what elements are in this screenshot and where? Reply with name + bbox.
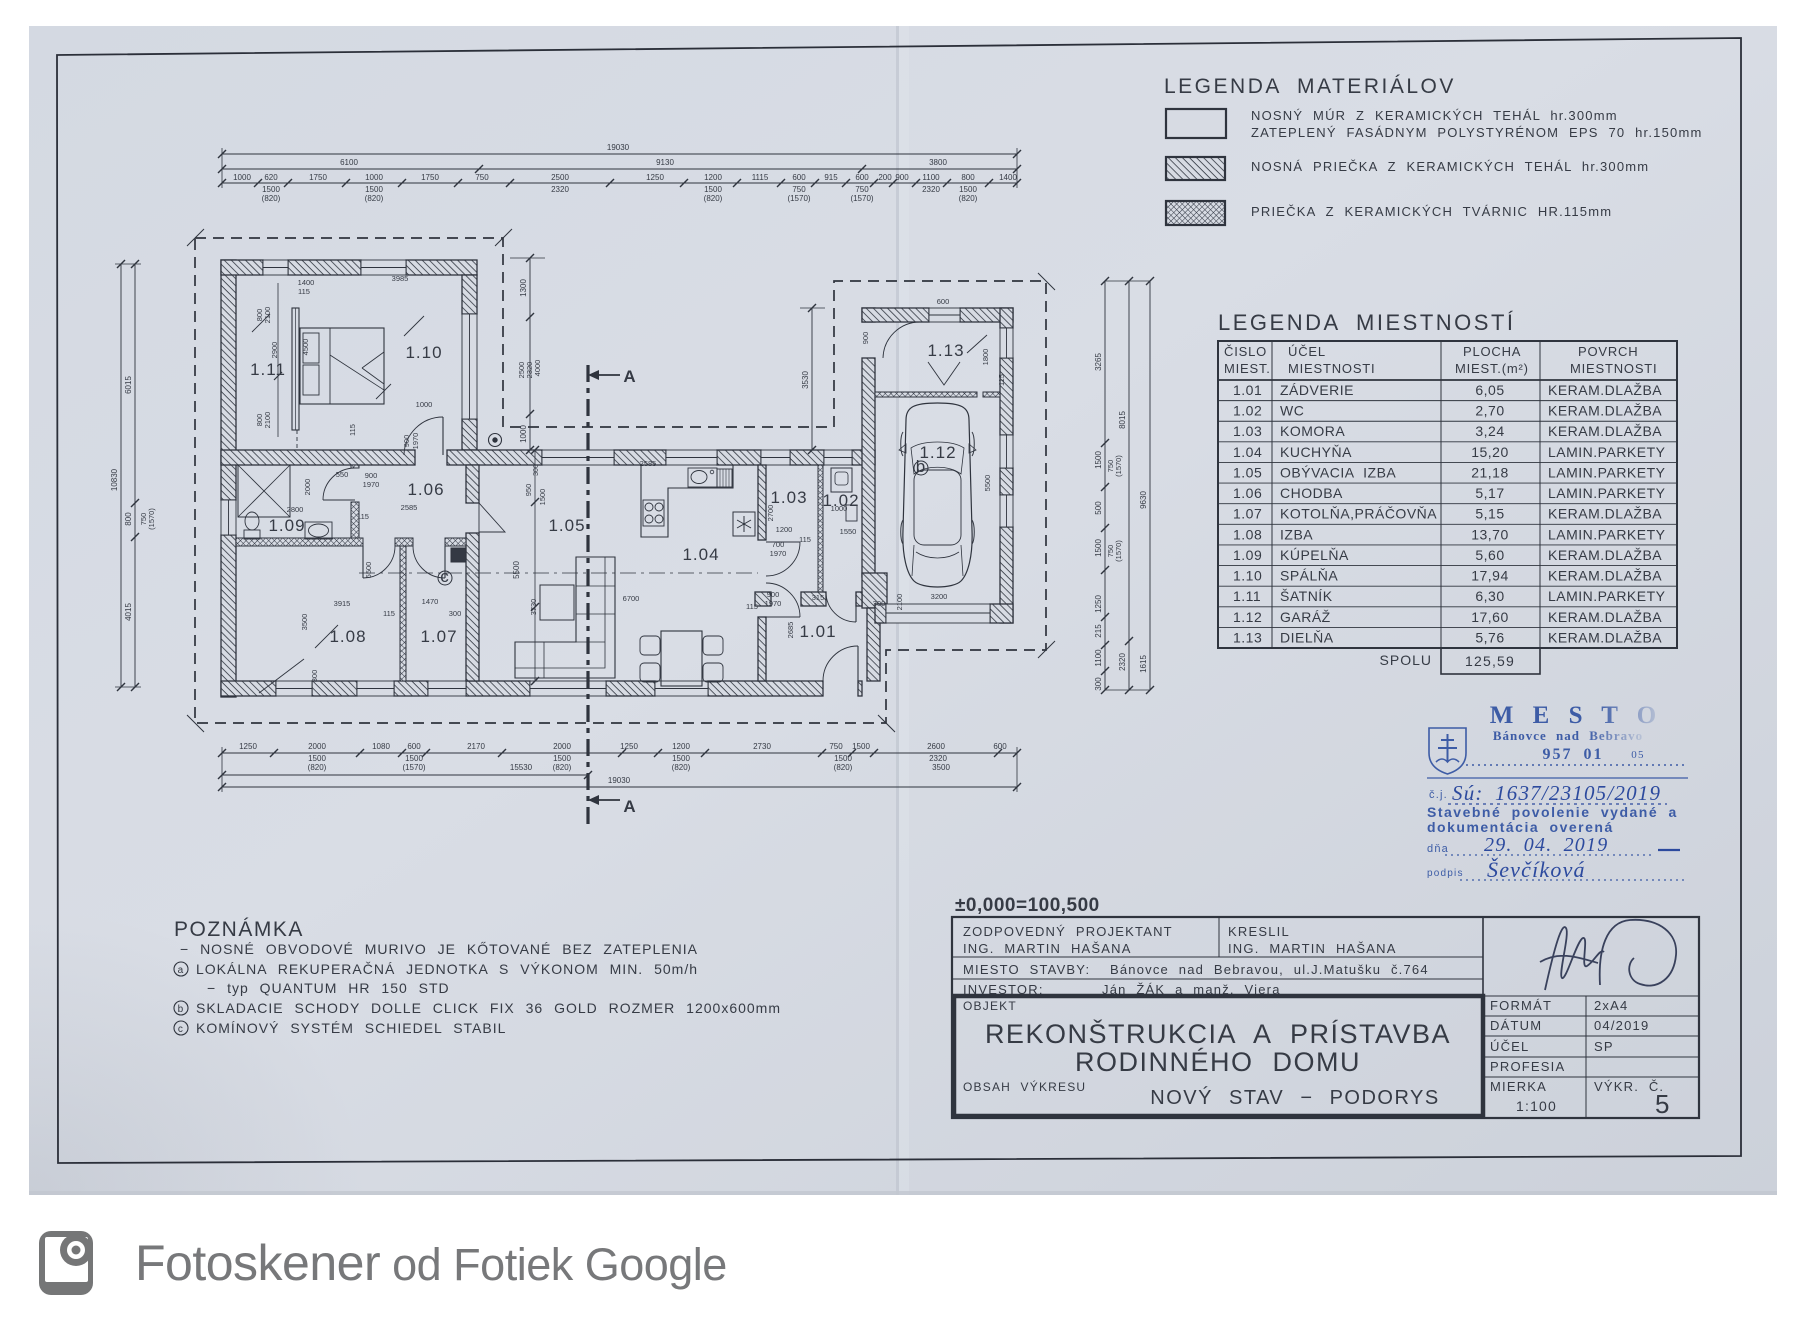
svg-text:2700: 2700 xyxy=(766,505,775,522)
svg-text:Bánovce nad Bebravou, ul.J.: Bánovce nad Bebravou, ul.J.Matušku č.764 xyxy=(1110,962,1429,977)
svg-text:dňa: dňa xyxy=(1427,843,1449,855)
svg-text:KERAM.DLAŽBA: KERAM.DLAŽBA xyxy=(1548,547,1662,563)
svg-text:M E S T O: M E S T O xyxy=(1490,702,1660,729)
svg-text:KRESLIL: KRESLIL xyxy=(1228,924,1290,939)
svg-text:915: 915 xyxy=(824,173,838,182)
svg-text:1.02: 1.02 xyxy=(1233,403,1262,419)
svg-text:750: 750 xyxy=(855,185,869,194)
svg-text:4000: 4000 xyxy=(533,360,542,377)
svg-text:2320: 2320 xyxy=(929,754,947,763)
svg-text:5: 5 xyxy=(1655,1089,1671,1119)
svg-text:1.11: 1.11 xyxy=(250,360,286,379)
svg-text:17,94: 17,94 xyxy=(1471,568,1509,584)
svg-text:2320: 2320 xyxy=(551,185,569,194)
svg-text:15530: 15530 xyxy=(510,763,533,772)
svg-text:6100: 6100 xyxy=(340,158,358,167)
svg-text:LEGENDA MATERIÁLOV: LEGENDA MATERIÁLOV xyxy=(1164,75,1456,98)
svg-text:300: 300 xyxy=(873,599,886,608)
svg-text:MIERKA: MIERKA xyxy=(1490,1079,1547,1094)
svg-text:900: 900 xyxy=(895,173,909,182)
svg-text:REKONŠTRUKCIA A PRÍSTAVBA: REKONŠTRUKCIA A PRÍSTAVBA xyxy=(985,1018,1451,1049)
svg-text:FORMÁT: FORMÁT xyxy=(1490,998,1552,1013)
svg-text:800: 800 xyxy=(124,512,133,526)
svg-text:(820): (820) xyxy=(262,194,281,203)
svg-text:17,60: 17,60 xyxy=(1471,609,1509,625)
svg-text:Ševčíková: Ševčíková xyxy=(1487,857,1586,882)
svg-text:2685: 2685 xyxy=(786,622,795,639)
svg-text:OBÝVACIA IZBA: OBÝVACIA IZBA xyxy=(1280,464,1396,480)
svg-text:1500: 1500 xyxy=(672,754,690,763)
svg-text:1200: 1200 xyxy=(672,742,690,751)
svg-text:1.05: 1.05 xyxy=(1233,464,1262,480)
svg-text:1.07: 1.07 xyxy=(1233,506,1262,522)
svg-text:1750: 1750 xyxy=(421,173,439,182)
svg-text:MIEST.: MIEST. xyxy=(1224,361,1271,376)
svg-text:1500: 1500 xyxy=(308,754,326,763)
svg-text:900: 900 xyxy=(767,590,780,599)
svg-text:3,24: 3,24 xyxy=(1475,423,1504,439)
svg-text:6,05: 6,05 xyxy=(1475,382,1504,398)
svg-text:MIESTNOSTI: MIESTNOSTI xyxy=(1288,361,1375,376)
svg-text:700: 700 xyxy=(772,540,785,549)
svg-text:1500: 1500 xyxy=(365,185,383,194)
svg-text:1500: 1500 xyxy=(852,742,870,751)
svg-text:300: 300 xyxy=(1094,677,1103,691)
svg-text:1500: 1500 xyxy=(405,754,423,763)
svg-text:3265: 3265 xyxy=(1094,353,1103,371)
svg-text:KERAM.DLAŽBA: KERAM.DLAŽBA xyxy=(1548,506,1662,522)
svg-text:MIEST.(m²): MIEST.(m²) xyxy=(1455,361,1529,376)
svg-text:1970: 1970 xyxy=(411,433,420,450)
svg-text:1000: 1000 xyxy=(831,504,848,513)
svg-text:LAMIN.PARKETY: LAMIN.PARKETY xyxy=(1548,464,1666,480)
svg-text:OBSAH VÝKRESU: OBSAH VÝKRESU xyxy=(963,1079,1086,1094)
svg-text:ZÁDVERIE: ZÁDVERIE xyxy=(1280,382,1354,398)
svg-text:1470: 1470 xyxy=(422,597,439,606)
svg-text:KERAM.DLAŽBA: KERAM.DLAŽBA xyxy=(1548,609,1662,625)
svg-text:Sú: 1637/23105/2019: Sú: 1637/23105/2019 xyxy=(1452,781,1661,805)
svg-text:1400: 1400 xyxy=(999,173,1017,182)
svg-text:1250: 1250 xyxy=(646,173,664,182)
svg-text:1.10: 1.10 xyxy=(405,343,442,362)
svg-text:115: 115 xyxy=(348,424,357,436)
svg-text:3500: 3500 xyxy=(300,614,309,631)
svg-text:ZODPOVEDNÝ PROJEKTANT: ZODPOVEDNÝ PROJEKTANT xyxy=(963,924,1173,939)
svg-text:2100: 2100 xyxy=(263,412,272,429)
svg-text:KERAM.DLAŽBA: KERAM.DLAŽBA xyxy=(1548,423,1662,439)
svg-text:5500: 5500 xyxy=(983,475,992,492)
svg-text:1500: 1500 xyxy=(704,185,722,194)
svg-text:620: 620 xyxy=(264,173,278,182)
svg-text:(1570): (1570) xyxy=(1114,455,1123,477)
svg-text:115: 115 xyxy=(746,602,758,611)
svg-text:500: 500 xyxy=(1094,501,1103,515)
svg-text:KOTOLŇA,PRÁČOVŇA: KOTOLŇA,PRÁČOVŇA xyxy=(1280,506,1437,522)
svg-text:(820): (820) xyxy=(365,194,384,203)
svg-text:1.07: 1.07 xyxy=(420,627,457,646)
svg-text:dokumentácia overená: dokumentácia overená xyxy=(1427,819,1614,835)
svg-text:Fotoskener od Fotiek Google: Fotoskener od Fotiek Google xyxy=(135,1235,727,1291)
svg-text:SP: SP xyxy=(1594,1039,1614,1054)
svg-text:2600: 2600 xyxy=(927,742,945,751)
svg-text:KOMÍNOVÝ SYSTÉM SCHIEDEL: KOMÍNOVÝ SYSTÉM SCHIEDEL STABIL xyxy=(196,1020,506,1036)
svg-text:(820): (820) xyxy=(834,763,853,772)
svg-text:(1570): (1570) xyxy=(787,194,810,203)
svg-text:KUCHYŇA: KUCHYŇA xyxy=(1280,444,1352,460)
svg-text:ČISLO: ČISLO xyxy=(1224,344,1267,359)
svg-text:29. 04. 2019: 29. 04. 2019 xyxy=(1484,834,1608,856)
svg-text:1250: 1250 xyxy=(1094,595,1103,613)
svg-text:2000: 2000 xyxy=(303,479,312,496)
svg-text:a: a xyxy=(178,965,185,976)
svg-text:(820): (820) xyxy=(959,194,978,203)
svg-text:(1570): (1570) xyxy=(147,508,156,530)
svg-text:(1570): (1570) xyxy=(850,194,873,203)
svg-text:− typ QUANTUM HR 150: − typ QUANTUM HR 150 STD xyxy=(207,980,450,996)
svg-text:4500: 4500 xyxy=(301,339,310,356)
svg-text:b: b xyxy=(178,1004,185,1015)
svg-text:(820): (820) xyxy=(553,763,572,772)
svg-text:WC: WC xyxy=(1280,403,1304,419)
svg-text:6015: 6015 xyxy=(124,376,133,394)
svg-text:Stavebné povolenie vydané a: Stavebné povolenie vydané a xyxy=(1427,804,1678,820)
svg-text:1.09: 1.09 xyxy=(1233,547,1262,563)
svg-text:1.09: 1.09 xyxy=(268,516,305,535)
svg-text:1500: 1500 xyxy=(834,754,852,763)
svg-text:KERAM.DLAŽBA: KERAM.DLAŽBA xyxy=(1548,629,1662,645)
svg-text:2100: 2100 xyxy=(895,594,904,611)
svg-text:5,60: 5,60 xyxy=(1475,547,1504,563)
svg-text:PRIEČKA Z KERAMICKÝCH TVÁRN: PRIEČKA Z KERAMICKÝCH TVÁRNIC HR.115mm xyxy=(1251,204,1612,219)
svg-text:2585: 2585 xyxy=(640,459,657,468)
svg-text:1.13: 1.13 xyxy=(1233,629,1262,645)
svg-text:1100: 1100 xyxy=(1094,649,1103,667)
svg-text:LOKÁLNA REKUPERAČNÁ JEDNOT: LOKÁLNA REKUPERAČNÁ JEDNOTKA S VÝKONOM M… xyxy=(196,961,698,977)
svg-text:5,76: 5,76 xyxy=(1475,629,1504,645)
svg-text:KOMORA: KOMORA xyxy=(1280,423,1345,439)
svg-text:2585: 2585 xyxy=(401,503,418,512)
svg-text:NOSNÝ MÚR Z KERAMICKÝCH TE: NOSNÝ MÚR Z KERAMICKÝCH TEHÁL hr.300mm xyxy=(1251,108,1618,123)
svg-text:POVRCH: POVRCH xyxy=(1578,344,1638,359)
svg-text:3530: 3530 xyxy=(801,371,810,389)
svg-text:LAMIN.PARKETY: LAMIN.PARKETY xyxy=(1548,444,1666,460)
svg-text:ING. MARTIN HAŠANA: ING. MARTIN HAŠANA xyxy=(963,941,1132,956)
svg-text:1000: 1000 xyxy=(519,425,528,443)
svg-text:5500: 5500 xyxy=(364,562,373,579)
svg-text:SPÁLŇA: SPÁLŇA xyxy=(1280,568,1338,584)
svg-text:115: 115 xyxy=(357,512,369,521)
svg-text:1970: 1970 xyxy=(770,549,787,558)
svg-text:13,70: 13,70 xyxy=(1471,526,1509,542)
svg-text:ZATEPLENÝ FASÁDNYM POLYSTYRÉ: ZATEPLENÝ FASÁDNYM POLYSTYRÉNOM EPS 70 h… xyxy=(1251,125,1703,140)
svg-text:PLOCHA: PLOCHA xyxy=(1463,344,1521,359)
svg-text:550: 550 xyxy=(336,470,349,479)
svg-text:1200: 1200 xyxy=(776,525,793,534)
svg-text:1.01: 1.01 xyxy=(799,622,836,641)
svg-text:podpis: podpis xyxy=(1427,868,1464,879)
svg-text:A: A xyxy=(623,797,636,816)
svg-text:1115: 1115 xyxy=(752,173,769,182)
svg-text:DIELŇA: DIELŇA xyxy=(1280,629,1334,645)
svg-text:1500: 1500 xyxy=(262,185,280,194)
svg-text:3800: 3800 xyxy=(929,158,947,167)
svg-text:6,30: 6,30 xyxy=(1475,588,1504,604)
svg-text:3200: 3200 xyxy=(931,592,948,601)
svg-text:1750: 1750 xyxy=(309,173,327,182)
svg-text:SPOLU: SPOLU xyxy=(1380,652,1432,668)
svg-text:DÁTUM: DÁTUM xyxy=(1490,1018,1542,1033)
svg-text:1500: 1500 xyxy=(553,754,571,763)
svg-text:5,15: 5,15 xyxy=(1475,506,1504,522)
svg-text:750: 750 xyxy=(475,173,489,182)
svg-text:600: 600 xyxy=(855,173,869,182)
svg-text:POZNÁMKA: POZNÁMKA xyxy=(174,918,304,941)
svg-text:(1570): (1570) xyxy=(1114,540,1123,562)
svg-text:(820): (820) xyxy=(704,194,723,203)
svg-text:MIESTO STAVBY:: MIESTO STAVBY: xyxy=(963,962,1090,977)
svg-text:300: 300 xyxy=(533,464,540,476)
svg-text:200: 200 xyxy=(878,173,892,182)
svg-text:2800: 2800 xyxy=(287,505,304,514)
svg-text:9130: 9130 xyxy=(656,158,674,167)
svg-text:CHODBA: CHODBA xyxy=(1280,485,1343,501)
svg-text:1.01: 1.01 xyxy=(1233,382,1262,398)
svg-text:ÚČEL: ÚČEL xyxy=(1288,344,1326,359)
svg-text:NOSNÁ PRIEČKA Z KERAMICKÝCH: NOSNÁ PRIEČKA Z KERAMICKÝCH TEHÁL hr.300… xyxy=(1251,159,1649,174)
svg-text:2170: 2170 xyxy=(467,742,485,751)
svg-text:115: 115 xyxy=(383,609,395,618)
svg-text:KERAM.DLAŽBA: KERAM.DLAŽBA xyxy=(1548,382,1662,398)
svg-text:ÚČEL: ÚČEL xyxy=(1490,1039,1529,1054)
svg-text:3500: 3500 xyxy=(932,763,950,772)
svg-text:900: 900 xyxy=(861,332,870,345)
svg-text:1100: 1100 xyxy=(922,173,940,182)
svg-text:SKLADACIE SCHODY DOLLE C: SKLADACIE SCHODY DOLLE CLICK FIX 36 GOLD… xyxy=(196,1000,781,1016)
svg-text:2xA4: 2xA4 xyxy=(1594,998,1628,1013)
svg-text:(820): (820) xyxy=(672,763,691,772)
svg-text:− NOSNÉ OBVODOVÉ MURIVO: − NOSNÉ OBVODOVÉ MURIVO JE KŐTOVANÉ BEZ … xyxy=(180,941,698,957)
svg-text:2320: 2320 xyxy=(922,185,940,194)
svg-text:1615: 1615 xyxy=(1139,655,1148,673)
svg-text:115: 115 xyxy=(997,374,1006,386)
svg-text:1500: 1500 xyxy=(1094,451,1103,469)
svg-text:3915: 3915 xyxy=(334,599,351,608)
svg-text:1500: 1500 xyxy=(538,489,547,506)
svg-text:LAMIN.PARKETY: LAMIN.PARKETY xyxy=(1548,526,1666,542)
svg-text:750: 750 xyxy=(829,742,843,751)
svg-text:1200: 1200 xyxy=(704,173,722,182)
svg-text:1970: 1970 xyxy=(765,599,782,608)
svg-text:ŠATNÍK: ŠATNÍK xyxy=(1280,588,1333,604)
svg-text:1:100: 1:100 xyxy=(1516,1098,1557,1114)
svg-text:115: 115 xyxy=(799,535,811,544)
svg-text:1500: 1500 xyxy=(959,185,977,194)
svg-text:1.04: 1.04 xyxy=(682,545,719,564)
svg-text:2,70: 2,70 xyxy=(1475,403,1504,419)
svg-text:800: 800 xyxy=(961,173,975,182)
svg-text:300: 300 xyxy=(449,609,462,618)
svg-text:115: 115 xyxy=(298,287,310,296)
svg-text:1000: 1000 xyxy=(233,173,251,182)
svg-text:1400: 1400 xyxy=(298,278,315,287)
svg-text:2000: 2000 xyxy=(553,742,571,751)
svg-text:5500: 5500 xyxy=(512,561,521,579)
svg-text:21,18: 21,18 xyxy=(1471,464,1509,480)
svg-text:8015: 8015 xyxy=(1118,411,1127,429)
svg-text:900: 900 xyxy=(402,435,411,448)
svg-text:KERAM.DLAŽBA: KERAM.DLAŽBA xyxy=(1548,568,1662,584)
svg-text:LAMIN.PARKETY: LAMIN.PARKETY xyxy=(1548,485,1666,501)
svg-text:04/2019: 04/2019 xyxy=(1594,1018,1649,1033)
svg-text:1.04: 1.04 xyxy=(1233,444,1262,460)
svg-text:1.10: 1.10 xyxy=(1233,568,1262,584)
svg-text:Bánovce nad Bebravo: Bánovce nad Bebravo xyxy=(1493,728,1643,743)
svg-text:5,17: 5,17 xyxy=(1475,485,1504,501)
svg-text:NOVÝ STAV − PODORYS: NOVÝ STAV − PODORYS xyxy=(1150,1086,1439,1109)
svg-text:315: 315 xyxy=(812,593,825,602)
svg-text:19030: 19030 xyxy=(607,143,630,152)
svg-text:1800: 1800 xyxy=(981,349,990,366)
svg-text:LAMIN.PARKETY: LAMIN.PARKETY xyxy=(1548,588,1666,604)
svg-text:1250: 1250 xyxy=(239,742,257,751)
svg-text:3730: 3730 xyxy=(529,599,538,616)
svg-text:750: 750 xyxy=(792,185,806,194)
svg-text:A: A xyxy=(623,367,636,386)
svg-text:1.12: 1.12 xyxy=(919,443,956,462)
svg-text:1550: 1550 xyxy=(840,527,857,536)
svg-text:2000: 2000 xyxy=(308,742,326,751)
svg-text:KERAM.DLAŽBA: KERAM.DLAŽBA xyxy=(1548,403,1662,419)
svg-text:125,59: 125,59 xyxy=(1465,653,1515,669)
svg-text:05: 05 xyxy=(1631,749,1644,761)
svg-text:ING. MARTIN HAŠANA: ING. MARTIN HAŠANA xyxy=(1228,941,1397,956)
svg-text:957 01: 957 01 xyxy=(1543,746,1604,763)
svg-text:1.13: 1.13 xyxy=(927,341,964,360)
svg-text:MIESTNOSTI: MIESTNOSTI xyxy=(1570,361,1657,376)
svg-text:1.12: 1.12 xyxy=(1233,609,1262,625)
svg-text:2320: 2320 xyxy=(1118,653,1127,671)
svg-text:1500: 1500 xyxy=(1094,539,1103,557)
svg-text:1.03: 1.03 xyxy=(1233,423,1262,439)
svg-text:15,20: 15,20 xyxy=(1471,444,1509,460)
svg-text:(820): (820) xyxy=(308,763,327,772)
svg-text:2900: 2900 xyxy=(270,342,279,359)
svg-text:1.03: 1.03 xyxy=(770,488,807,507)
svg-text:1080: 1080 xyxy=(372,742,390,751)
svg-text:LEGENDA MIESTNOSTÍ: LEGENDA MIESTNOSTÍ xyxy=(1218,310,1516,335)
svg-text:600: 600 xyxy=(993,742,1007,751)
svg-text:4015: 4015 xyxy=(124,603,133,621)
svg-text:1.08: 1.08 xyxy=(1233,526,1262,542)
svg-text:KÚPELŇA: KÚPELŇA xyxy=(1280,547,1349,563)
svg-text:1250: 1250 xyxy=(620,742,638,751)
svg-text:215: 215 xyxy=(1094,624,1103,638)
svg-text:OBJEKT: OBJEKT xyxy=(963,999,1017,1013)
svg-text:VÝKR. Č.: VÝKR. Č. xyxy=(1594,1079,1664,1094)
svg-text:9630: 9630 xyxy=(1139,491,1148,509)
svg-text:1000: 1000 xyxy=(365,173,383,182)
svg-text:c: c xyxy=(178,1024,184,1035)
svg-text:PROFESIA: PROFESIA xyxy=(1490,1059,1565,1074)
svg-text:19030: 19030 xyxy=(608,776,631,785)
svg-text:1.11: 1.11 xyxy=(1233,588,1261,604)
svg-text:300: 300 xyxy=(310,670,319,683)
svg-text:600: 600 xyxy=(407,742,421,751)
svg-text:10830: 10830 xyxy=(110,468,119,491)
svg-text:IZBA: IZBA xyxy=(1280,526,1313,542)
svg-text:±0,000=100,500: ±0,000=100,500 xyxy=(955,895,1100,916)
svg-text:2730: 2730 xyxy=(753,742,771,751)
svg-text:2100: 2100 xyxy=(263,307,272,324)
svg-text:(1570): (1570) xyxy=(402,763,425,772)
svg-text:c: c xyxy=(440,567,450,586)
svg-text:RODINNÉHO DOMU: RODINNÉHO DOMU xyxy=(1075,1047,1361,1077)
svg-text:1.06: 1.06 xyxy=(407,480,444,499)
svg-text:600: 600 xyxy=(792,173,806,182)
svg-text:GARÁŽ: GARÁŽ xyxy=(1280,609,1331,625)
svg-text:č.j.: č.j. xyxy=(1429,789,1448,801)
svg-text:6700: 6700 xyxy=(623,594,640,603)
svg-text:2500: 2500 xyxy=(551,173,569,182)
svg-text:1300: 1300 xyxy=(519,279,528,297)
svg-text:3985: 3985 xyxy=(392,274,409,283)
svg-text:900: 900 xyxy=(365,471,378,480)
svg-text:1000: 1000 xyxy=(416,400,433,409)
svg-text:1.08: 1.08 xyxy=(329,627,366,646)
svg-text:600: 600 xyxy=(937,297,950,306)
svg-text:1970: 1970 xyxy=(363,480,380,489)
svg-text:950: 950 xyxy=(524,484,533,497)
svg-text:1.05: 1.05 xyxy=(548,516,585,535)
svg-text:1.06: 1.06 xyxy=(1233,485,1262,501)
